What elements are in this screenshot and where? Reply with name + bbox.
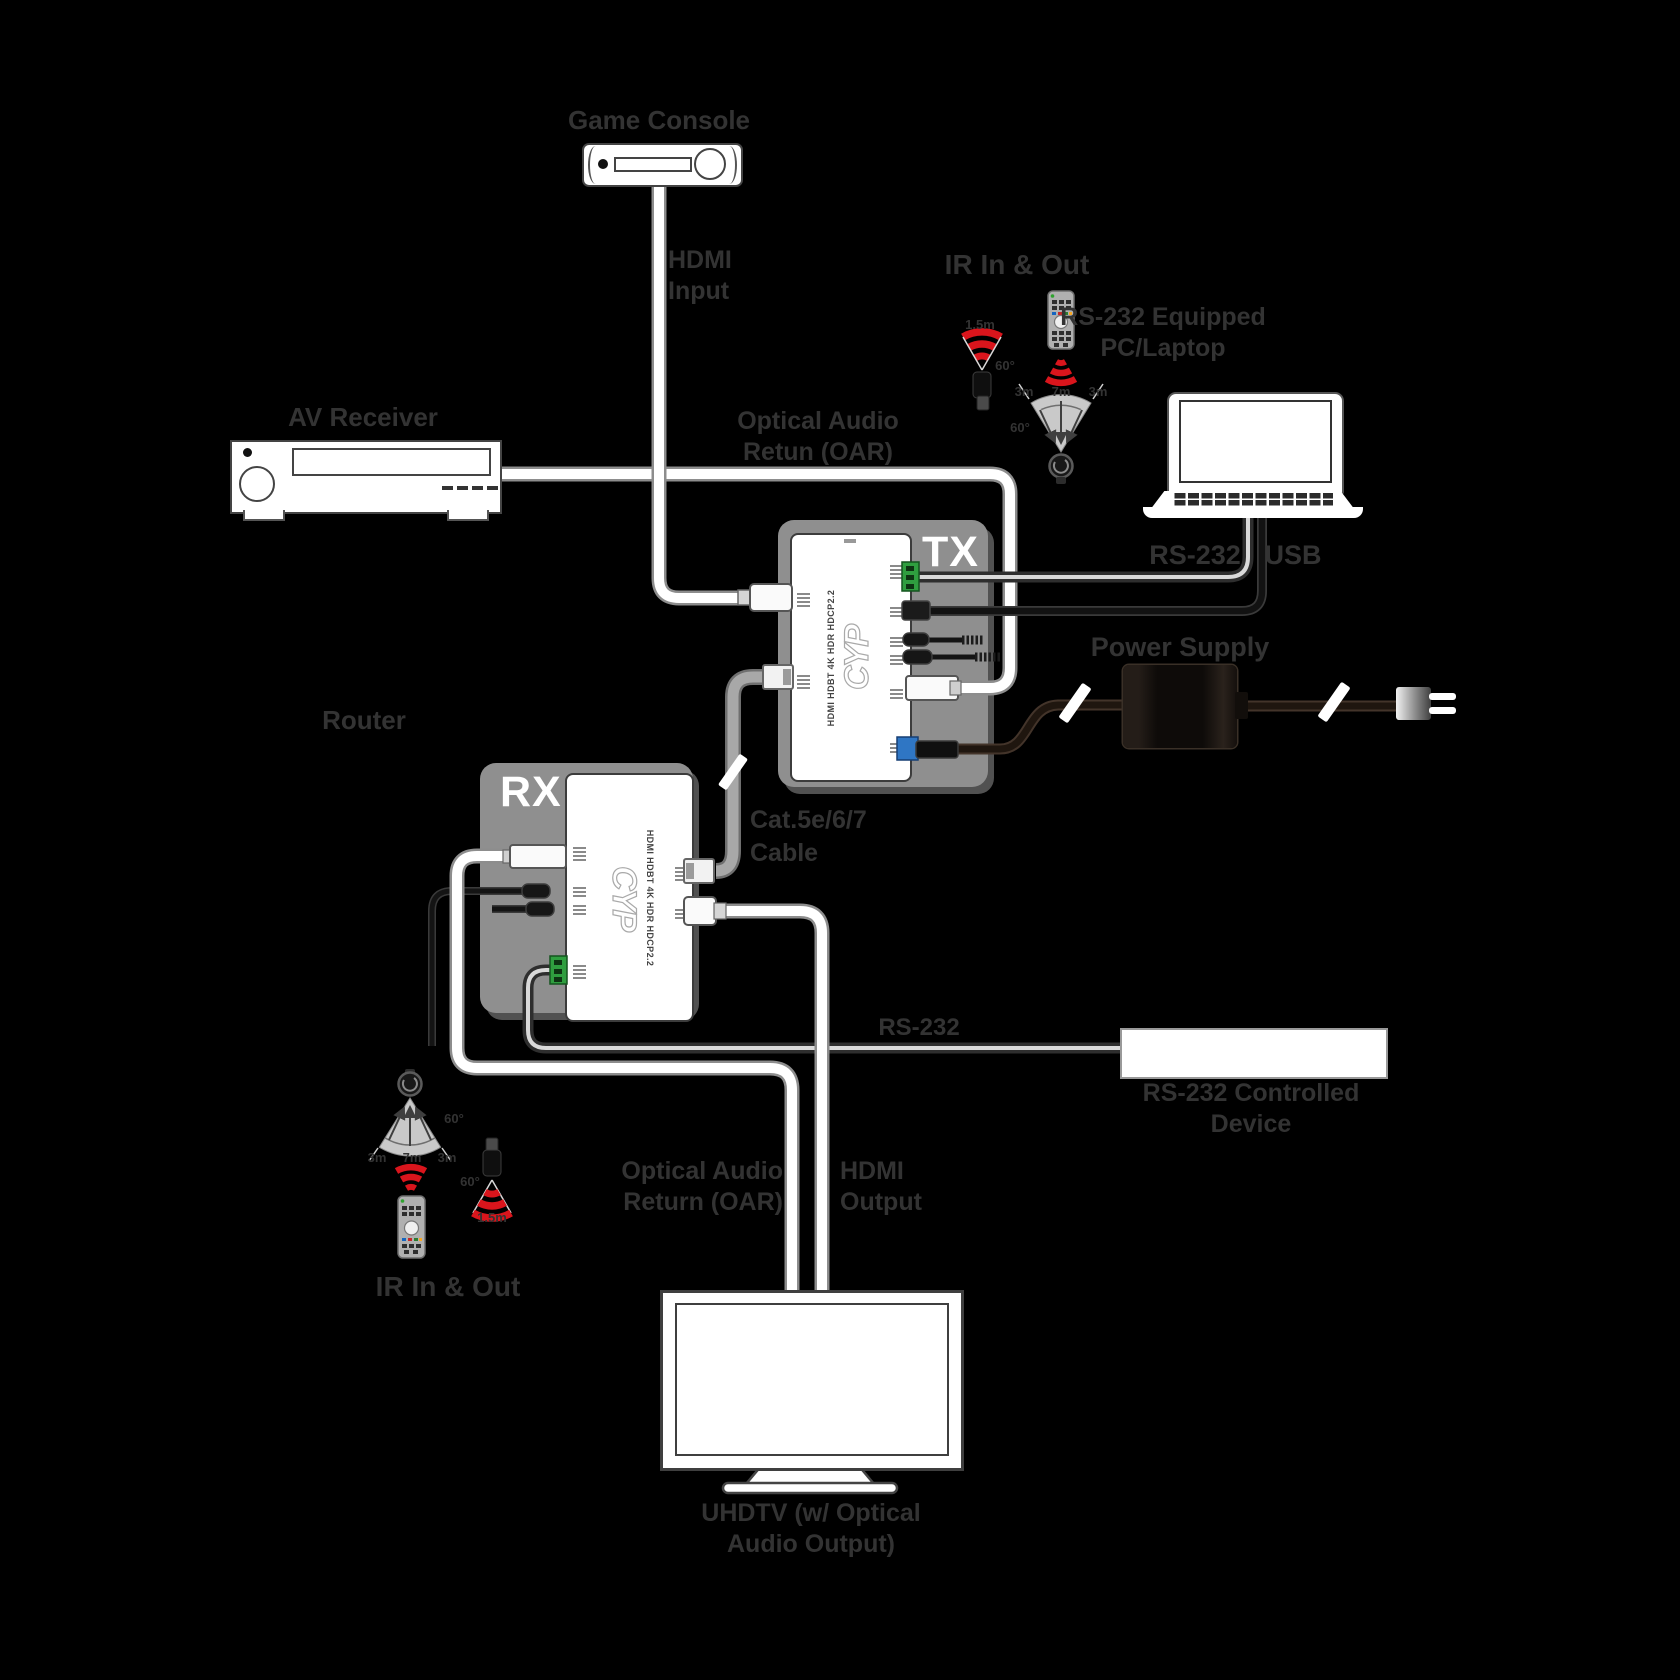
uhdtv-line1: UHDTV (w/ Optical — [701, 1499, 920, 1527]
oar-top-line2: Retun (OAR) — [743, 438, 893, 466]
ir-top-emitter-range-label: 1.5m — [965, 317, 995, 332]
power-supply-brick — [1123, 665, 1237, 748]
rx-cat-rj45-plug — [684, 859, 714, 883]
usb-label: USB — [1264, 539, 1321, 572]
ir-bottom-range-right-label: 3m — [438, 1150, 457, 1165]
console-dial — [694, 148, 726, 180]
oar-top-label: Optical AudioRetun (OAR) — [737, 406, 899, 467]
rs232-top-label: RS-232 — [1149, 539, 1241, 572]
hdmi-input-line2: Input — [668, 277, 729, 305]
av-receiver-label: AV Receiver — [288, 402, 438, 434]
ir-bottom-emitter-angle-label: 60° — [460, 1174, 480, 1189]
ir-top-receiver-angle-label: 60° — [1010, 420, 1030, 435]
plug-prong — [1429, 707, 1456, 714]
rx-ir-jacks — [522, 884, 554, 916]
tx-dc-plug — [897, 737, 958, 760]
hdmi-input-line1: HDMI — [668, 246, 732, 274]
tx-cat-rj45-plug — [763, 665, 793, 689]
receiver-display — [292, 448, 491, 476]
ir-top-emitter-angle-label: 60° — [995, 358, 1015, 373]
console-disc-slot — [614, 157, 692, 172]
ir-bottom-waves-icon — [397, 1167, 426, 1188]
uhdtv-label: UHDTV (w/ OpticalAudio Output) — [701, 1498, 920, 1559]
rx-ir-cables — [432, 891, 530, 1046]
ir-top-receiver-eye-icon — [1050, 455, 1073, 485]
ir-top-range-left-label: 3m — [1015, 384, 1034, 399]
hdmi-output-label: HDMIOutput — [840, 1156, 922, 1217]
oar-bottom-line1: Optical Audio — [621, 1157, 783, 1185]
laptop-screen — [1167, 392, 1344, 495]
ir-top-label: IR In & Out — [945, 248, 1090, 282]
cat-line1: Cat.5e/6/7 — [750, 806, 867, 834]
rs232-device-line1: RS-232 Controlled — [1143, 1079, 1360, 1107]
ir-bottom-receiver-angle-label: 60° — [444, 1111, 464, 1126]
oar-bottom-cable — [457, 856, 792, 1292]
receiver-button — [442, 486, 453, 490]
laptop-display-panel — [1179, 400, 1332, 483]
uhdtv-screen — [675, 1303, 949, 1456]
ir-bottom-range-center-label: 7m — [403, 1150, 422, 1165]
receiver-power-led — [243, 448, 252, 457]
uhdtv-device — [660, 1290, 964, 1471]
rs232-controlled-device — [1120, 1028, 1388, 1079]
ir-bottom-emitter-range-label: 1.5m — [477, 1210, 507, 1225]
rs232-device-line2: Device — [1211, 1110, 1292, 1138]
pc-line2: PC/Laptop — [1101, 334, 1226, 362]
oar-bottom-label: Optical AudioReturn (OAR) — [621, 1156, 783, 1217]
game-console-device — [582, 143, 743, 187]
ir-bottom-label: IR In & Out — [376, 1270, 521, 1304]
tx-ir-cables — [929, 640, 1000, 657]
receiver-button — [472, 486, 483, 490]
ir-bottom-remote-icon — [398, 1196, 425, 1258]
laptop-keyboard — [1172, 493, 1333, 507]
power-supply-label: Power Supply — [1091, 631, 1270, 664]
receiver-volume-knob — [239, 466, 275, 502]
router-label: Router — [322, 705, 406, 737]
rx-badge: RX — [500, 768, 562, 817]
tx-ir-jacks — [903, 633, 932, 664]
receiver-foot — [243, 510, 285, 521]
rx-opt-in-plug — [503, 845, 566, 868]
uhdtv-line2: Audio Output) — [727, 1530, 895, 1558]
cat-cable-label: Cat.5e/6/7Cable — [750, 804, 867, 870]
hdmi-output-line1: HDMI — [840, 1157, 904, 1185]
laptop-base-lip — [1143, 507, 1363, 518]
oar-top-line1: Optical Audio — [737, 407, 899, 435]
ir-top-waves-icon — [1047, 362, 1076, 383]
av-receiver-device — [230, 440, 502, 514]
hdmi-output-line2: Output — [840, 1188, 922, 1216]
pc-line1: RS-232 Equipped — [1060, 303, 1266, 331]
ir-bottom-receiver-eye-icon — [399, 1069, 422, 1096]
rx-hdmi-out-plug — [684, 897, 726, 925]
hdmi-output-cable — [724, 911, 822, 1292]
receiver-button — [457, 486, 468, 490]
tx-service-usb-plug — [902, 601, 930, 620]
tx-rs232-terminal — [902, 562, 919, 591]
cat-line2: Cable — [750, 839, 818, 867]
pc-label: RS-232 EquippedPC/Laptop — [1060, 302, 1266, 363]
diagram-canvas: HDMI HDBT 4K HDR HDCP2.2 CYP HDMI HDBT 4… — [0, 0, 1680, 1680]
power-supply-outlet-nub — [1235, 692, 1248, 719]
rs232-device-label: RS-232 ControlledDevice — [1143, 1078, 1360, 1139]
tx-badge: TX — [922, 528, 979, 577]
ir-top-range-center-label: 7m — [1052, 384, 1071, 399]
game-console-label: Game Console — [568, 105, 750, 137]
receiver-button — [487, 486, 498, 490]
wall-plug-icon — [1396, 687, 1431, 720]
ir-top-range-right-label: 3m — [1089, 384, 1108, 399]
receiver-foot — [447, 510, 489, 521]
plug-prong — [1429, 693, 1456, 700]
ir-bottom-range-left-label: 3m — [368, 1150, 387, 1165]
console-power-led — [598, 159, 608, 169]
hdmi-input-label: HDMIInput — [668, 245, 732, 306]
tx-hdmi-in-plug — [738, 584, 792, 611]
oar-bottom-line2: Return (OAR) — [623, 1188, 783, 1216]
tx-opt-out-plug — [906, 676, 961, 700]
rx-rs232-terminal — [550, 956, 567, 984]
rs232-bottom-label: RS-232 — [878, 1013, 959, 1042]
